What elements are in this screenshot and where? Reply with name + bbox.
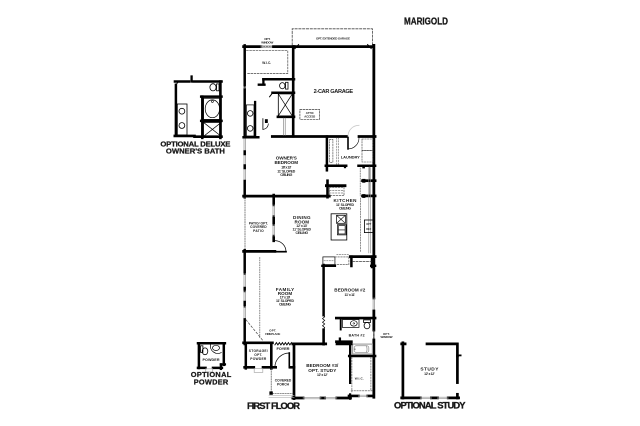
svg-text:FIREPLACE: FIREPLACE bbox=[265, 332, 280, 336]
svg-text:OPT. EXTENDED GARAGE: OPT. EXTENDED GARAGE bbox=[316, 37, 350, 41]
svg-text:CEILING: CEILING bbox=[280, 173, 292, 177]
svg-text:11' x 11': 11' x 11' bbox=[345, 293, 356, 297]
svg-text:W.I.C.: W.I.C. bbox=[355, 377, 364, 381]
svg-text:LAUNDRY: LAUNDRY bbox=[341, 154, 360, 159]
svg-text:CEILING: CEILING bbox=[296, 231, 309, 235]
svg-text:BATH #2: BATH #2 bbox=[349, 334, 365, 338]
svg-text:FIRST FLOOR: FIRST FLOOR bbox=[247, 400, 300, 411]
svg-text:12' x 12': 12' x 12' bbox=[317, 373, 328, 377]
svg-text:POWDER: POWDER bbox=[250, 357, 267, 361]
svg-text:CEILING: CEILING bbox=[339, 206, 351, 210]
svg-text:POWDER: POWDER bbox=[194, 378, 229, 387]
svg-text:2-CAR GARAGE: 2-CAR GARAGE bbox=[314, 89, 354, 95]
svg-text:OWNER'S BATH: OWNER'S BATH bbox=[166, 146, 225, 155]
svg-text:PORCH: PORCH bbox=[277, 382, 290, 386]
svg-text:REF: REF bbox=[366, 228, 372, 231]
svg-text:BEDROOM: BEDROOM bbox=[275, 160, 299, 165]
svg-text:WINDOW: WINDOW bbox=[381, 335, 393, 339]
svg-text:PATIO: PATIO bbox=[253, 229, 264, 233]
svg-text:POWDER: POWDER bbox=[203, 358, 220, 362]
svg-text:MARIGOLD: MARIGOLD bbox=[404, 17, 448, 28]
svg-text:OPT: OPT bbox=[366, 223, 372, 226]
svg-text:W.I.C.: W.I.C. bbox=[262, 61, 271, 65]
svg-text:WINDOW: WINDOW bbox=[261, 40, 273, 44]
svg-text:ACCESS: ACCESS bbox=[304, 114, 315, 118]
svg-text:CEILING: CEILING bbox=[279, 302, 291, 306]
svg-text:12' x 12': 12' x 12' bbox=[424, 372, 435, 376]
svg-text:OPTIONAL STUDY: OPTIONAL STUDY bbox=[394, 400, 466, 411]
svg-text:BEDROOM #2: BEDROOM #2 bbox=[334, 287, 365, 292]
svg-text:FOYER: FOYER bbox=[277, 346, 290, 351]
